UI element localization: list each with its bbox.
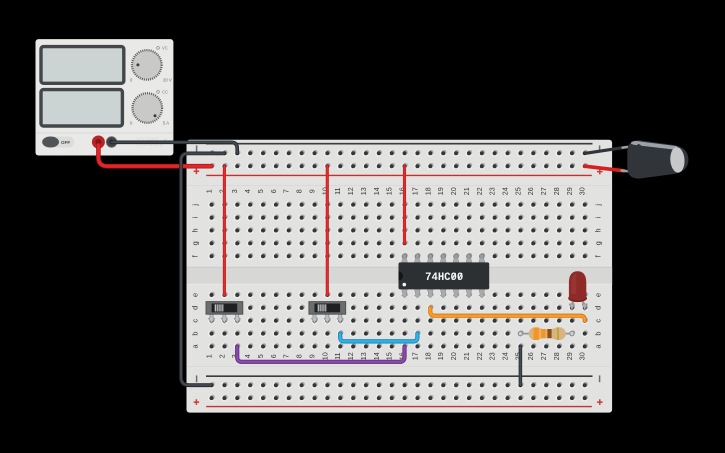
svg-text:29: 29 [565, 352, 574, 360]
svg-text:6: 6 [269, 354, 278, 358]
svg-text:13: 13 [359, 187, 368, 195]
svg-text:7: 7 [282, 354, 291, 358]
svg-text:9: 9 [308, 189, 317, 193]
svg-text:9: 9 [308, 354, 317, 358]
svg-text:30: 30 [578, 187, 587, 195]
svg-text:18: 18 [423, 187, 432, 195]
svg-text:28: 28 [552, 352, 561, 360]
svg-text:VC: VC [162, 46, 168, 51]
svg-text:19: 19 [436, 187, 445, 195]
svg-text:20: 20 [449, 187, 458, 195]
svg-text:8: 8 [295, 189, 304, 193]
svg-text:CC: CC [162, 90, 168, 95]
svg-text:14: 14 [372, 352, 381, 360]
svg-text:23: 23 [488, 352, 497, 360]
svg-text:1: 1 [205, 354, 214, 358]
svg-text:2: 2 [217, 354, 226, 358]
svg-text:j: j [190, 204, 199, 207]
svg-text:28: 28 [552, 187, 561, 195]
svg-text:21: 21 [462, 352, 471, 360]
svg-text:12: 12 [346, 187, 355, 195]
svg-text:1: 1 [205, 189, 214, 193]
svg-text:6: 6 [269, 189, 278, 193]
svg-text:h: h [594, 228, 603, 232]
svg-text:20 V: 20 V [163, 77, 172, 82]
svg-text:74HC00: 74HC00 [425, 272, 463, 284]
svg-text:j: j [594, 204, 603, 207]
svg-text:11: 11 [333, 187, 342, 194]
svg-text:26: 26 [526, 352, 535, 360]
svg-text:10: 10 [320, 352, 329, 360]
svg-text:30: 30 [578, 352, 587, 360]
svg-text:23: 23 [488, 187, 497, 195]
svg-text:15: 15 [385, 187, 394, 195]
svg-text:c: c [594, 319, 603, 323]
svg-text:27: 27 [539, 352, 548, 360]
svg-text:24: 24 [501, 187, 510, 195]
svg-text:g: g [594, 241, 603, 245]
svg-text:OFF: OFF [61, 140, 70, 145]
svg-text:8: 8 [295, 354, 304, 358]
svg-text:25: 25 [513, 187, 522, 195]
svg-text:19: 19 [436, 352, 445, 360]
svg-text:5: 5 [256, 189, 265, 193]
svg-text:b: b [594, 332, 603, 336]
svg-text:h: h [190, 228, 199, 232]
svg-text:22: 22 [475, 352, 484, 360]
svg-text:5 A: 5 A [163, 120, 169, 125]
svg-text:4: 4 [243, 189, 252, 193]
svg-text:5: 5 [256, 354, 265, 358]
svg-text:29: 29 [565, 187, 574, 195]
svg-text:c: c [190, 319, 199, 323]
svg-text:d: d [594, 306, 603, 310]
svg-text:21: 21 [462, 187, 471, 195]
svg-text:3: 3 [230, 189, 239, 193]
svg-text:26: 26 [526, 187, 535, 195]
svg-text:13: 13 [359, 352, 368, 360]
svg-text:g: g [190, 241, 199, 245]
svg-text:7: 7 [282, 189, 291, 193]
svg-text:d: d [190, 306, 199, 310]
svg-text:e: e [594, 293, 603, 297]
svg-text:17: 17 [410, 352, 419, 360]
svg-text:27: 27 [539, 187, 548, 195]
svg-text:b: b [190, 332, 199, 336]
svg-text:12: 12 [346, 352, 355, 360]
svg-text:15: 15 [385, 352, 394, 360]
svg-text:e: e [190, 293, 199, 297]
svg-text:22: 22 [475, 187, 484, 195]
svg-text:4: 4 [243, 354, 252, 358]
svg-text:11: 11 [333, 352, 342, 359]
svg-text:18: 18 [423, 352, 432, 360]
svg-text:24: 24 [501, 352, 510, 360]
svg-text:20: 20 [449, 352, 458, 360]
svg-text:17: 17 [410, 187, 419, 195]
svg-text:14: 14 [372, 187, 381, 195]
